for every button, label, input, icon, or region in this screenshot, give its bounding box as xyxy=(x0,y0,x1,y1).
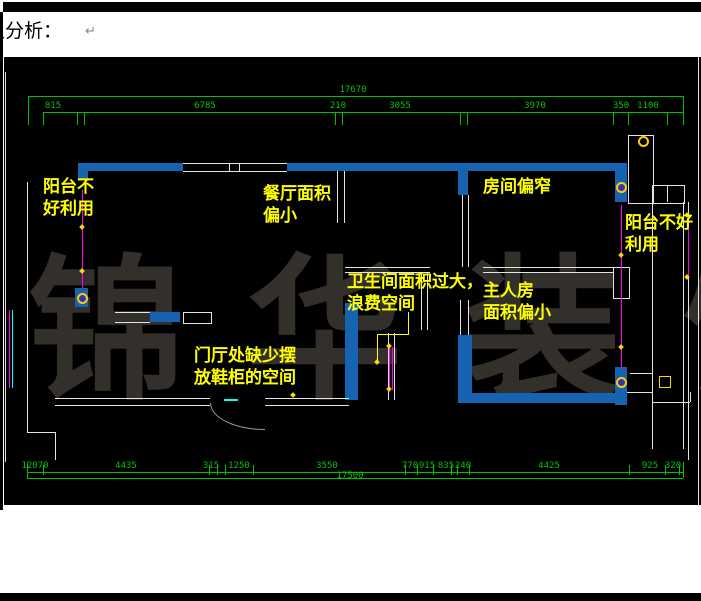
wall-segment xyxy=(287,163,458,171)
dim-label: 3970 xyxy=(524,101,546,111)
dimension-tick xyxy=(467,112,468,125)
wall-line xyxy=(462,195,463,267)
dim-label: 815 xyxy=(45,101,61,111)
dimension-tick xyxy=(84,112,85,125)
dim-label: 4425 xyxy=(538,461,560,471)
junction-marker xyxy=(616,377,627,388)
wall-line xyxy=(652,402,690,403)
wall-line xyxy=(55,405,210,406)
wall-line xyxy=(55,398,210,399)
wall-segment xyxy=(150,312,180,322)
annotation: 好利用 xyxy=(43,198,94,220)
junction-marker xyxy=(616,182,627,193)
wall-line xyxy=(630,373,652,374)
dim-label: 315 xyxy=(203,461,219,471)
leader-line xyxy=(389,347,390,390)
floorplan-image: 锦 华 装 饰 17670815678521030553970350110012… xyxy=(4,57,701,505)
wall-line xyxy=(468,300,469,335)
wall-line xyxy=(183,163,287,164)
dim-label: 17670 xyxy=(339,85,366,95)
wall-segment xyxy=(88,163,183,171)
bottom-border-bar xyxy=(0,593,701,601)
wall-line xyxy=(115,322,150,323)
duct-marker xyxy=(638,136,649,147)
callout-line xyxy=(377,334,378,362)
dim-label: 350 xyxy=(613,101,629,111)
dim-label: 17500 xyxy=(336,471,363,481)
annotation: 房间偏窄 xyxy=(483,176,551,198)
annotation: 门厅处缺少摆 xyxy=(194,345,296,367)
dimension-line xyxy=(28,96,683,97)
window-line xyxy=(12,310,13,388)
wall-line xyxy=(690,392,691,402)
annotation: 阳台不 xyxy=(43,176,94,198)
annotation: 偏小 xyxy=(263,205,297,227)
dim-label: 210 xyxy=(330,101,346,111)
callout-line xyxy=(408,312,409,334)
wall-line xyxy=(27,182,28,432)
leader-mark xyxy=(79,224,85,230)
wall-segment xyxy=(458,163,468,195)
column-marker xyxy=(659,376,671,388)
dim-label: 4435 xyxy=(115,461,137,471)
wall-line xyxy=(5,72,6,462)
wall-line xyxy=(483,272,613,273)
dimension-tick xyxy=(629,465,630,475)
dim-label: 1250 xyxy=(228,461,250,471)
dimension-tick xyxy=(683,462,684,478)
leader-line xyxy=(621,205,622,367)
document-page: 型分析： ↵ 锦 华 装 饰 1767081567852103055397035… xyxy=(0,0,701,601)
annotation: 卫生间面积过大， xyxy=(347,271,483,293)
annotation: 主人房 xyxy=(483,280,534,302)
dim-label: 770 xyxy=(402,461,418,471)
dim-label: 6785 xyxy=(194,101,216,111)
dim-label: 915 xyxy=(419,461,435,471)
dimension-tick xyxy=(683,112,684,125)
wall-line xyxy=(483,267,613,268)
wall-line xyxy=(183,171,287,172)
dimension-tick xyxy=(460,112,461,125)
wall-line xyxy=(229,163,230,171)
leader-line xyxy=(392,347,393,390)
wall-segment xyxy=(345,303,358,400)
dimension-tick xyxy=(613,112,614,125)
wall-line xyxy=(239,163,240,171)
dimension-tick xyxy=(28,96,29,125)
dimension-tick xyxy=(335,112,336,125)
wall-line xyxy=(394,333,395,400)
wall-line xyxy=(468,195,469,267)
annotation: 利用 xyxy=(625,234,659,256)
dimension-tick xyxy=(253,465,254,475)
annotation: 放鞋柜的空间 xyxy=(194,367,296,389)
wall-line xyxy=(698,57,699,505)
dimension-tick xyxy=(628,112,629,125)
dimension-tick xyxy=(342,112,343,125)
wall-line xyxy=(460,300,461,335)
wall-line xyxy=(344,171,345,223)
wall-line xyxy=(115,312,150,313)
dim-label: 12070 xyxy=(21,461,48,471)
wall-segment xyxy=(460,393,615,403)
wall-segment xyxy=(468,163,615,171)
dim-label: 240 xyxy=(455,461,471,471)
window-line xyxy=(224,399,238,401)
annotation: 面积偏小 xyxy=(483,302,551,324)
top-border-bar xyxy=(3,2,701,12)
dim-label: 1100 xyxy=(637,101,659,111)
wall-line xyxy=(345,267,430,268)
paragraph-mark: ↵ xyxy=(85,24,96,39)
dimension-tick xyxy=(667,112,668,125)
door-arc xyxy=(210,403,265,430)
dim-label: 3550 xyxy=(316,461,338,471)
junction-marker xyxy=(77,293,88,304)
wall-line xyxy=(627,392,652,393)
wall-line xyxy=(337,171,338,223)
wall-line xyxy=(27,432,55,433)
annotation: 阳台不好 xyxy=(625,212,693,234)
wall-line xyxy=(683,202,684,449)
dimension-line xyxy=(43,112,683,113)
dim-label: 3055 xyxy=(389,101,411,111)
pier-outline xyxy=(183,312,212,324)
left-border-line xyxy=(0,12,3,510)
dim-label: 925 xyxy=(642,461,658,471)
leader-line xyxy=(9,310,10,388)
heading-line: 型分析： xyxy=(0,16,120,48)
dimension-tick xyxy=(77,112,78,125)
wall-line xyxy=(55,432,56,460)
heading-text: 型分析： xyxy=(0,16,62,43)
pier-outline xyxy=(652,185,685,204)
callout-line xyxy=(377,334,409,335)
dim-label: 320 xyxy=(665,461,681,471)
dimension-tick xyxy=(225,465,226,475)
dimension-tick xyxy=(43,112,44,125)
dim-label: 835 xyxy=(438,461,454,471)
wall-line xyxy=(265,398,349,399)
annotation: 浪费空间 xyxy=(347,293,415,315)
annotation: 餐厅面积 xyxy=(263,183,331,205)
wall-line xyxy=(265,405,349,406)
